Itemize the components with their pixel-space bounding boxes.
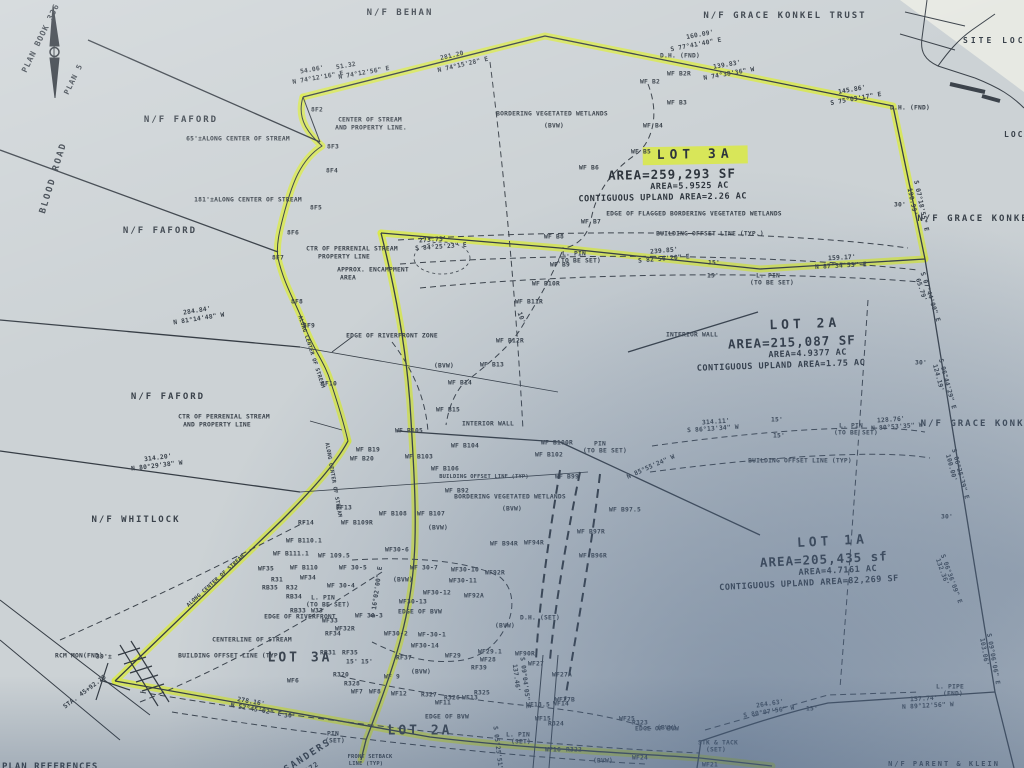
wetland-flag-label: RB34 xyxy=(286,594,302,601)
map-note: BORDERING VEGETATED WETLANDS xyxy=(454,494,566,501)
bearing-label: N 89°12'56" W xyxy=(902,701,954,711)
wetland-flag-label: WF B108 xyxy=(379,511,407,518)
dimension-label: 15' xyxy=(771,417,783,424)
wetland-flag-label: WF12 xyxy=(391,691,407,698)
wetland-flag-label: RF13 xyxy=(336,505,352,512)
wetland-flag-label: WF B6 xyxy=(579,165,599,172)
dimension-label: 15' xyxy=(773,433,785,440)
wetland-flag-label: R325 xyxy=(474,690,490,697)
map-note: BUILDING OFFSET LINE (TYP) xyxy=(748,458,852,465)
wetland-flag-label: WF-30-1 xyxy=(418,632,446,639)
wetland-flag-label: WF B9 xyxy=(550,262,570,269)
wetland-flag-label: WF11 xyxy=(435,700,451,707)
map-note: EDGE OF RIVERFRONT ZONE xyxy=(346,333,438,340)
dimension-label: 30' xyxy=(894,202,906,209)
wetland-flag-label: R32 xyxy=(286,585,298,592)
wetland-flag-label: R322 xyxy=(566,747,582,754)
owner-label: N/F FAFORD xyxy=(123,226,197,236)
wetland-flag-label: R323 xyxy=(632,720,648,727)
wetland-flag-label: WF B94R xyxy=(490,541,518,548)
wetland-flag-label: WF B104 xyxy=(451,443,479,450)
monument-label: STK & TACK xyxy=(698,740,738,747)
wetland-flag-label: WF B15 xyxy=(436,407,460,414)
wetland-flag-label: WF B4 xyxy=(643,123,663,130)
wetland-flag-label: WF B102 xyxy=(535,452,563,459)
wetland-flag-label: 8F2 xyxy=(311,107,323,114)
map-note: BORDERING VEGETATED WETLANDS xyxy=(496,111,608,118)
wetland-flag-label: WF B3 xyxy=(667,100,687,107)
wetland-flag-label: WF 30-4 xyxy=(327,583,355,590)
wetland-flag-label: WF94R xyxy=(524,540,544,547)
dimension-label: 15' xyxy=(806,706,818,713)
wetland-flag-label: RB33 xyxy=(290,608,306,615)
wetland-flag-label: WF B11R xyxy=(515,299,543,306)
wetland-flag-label: RB35 xyxy=(262,585,278,592)
map-note: STA. 45+92.15 xyxy=(62,674,108,711)
map-note: BUILDING OFFSET LINE (TYP) xyxy=(439,474,529,480)
wetland-flag-label: W33 xyxy=(311,608,323,615)
map-note: (BVW) xyxy=(495,623,515,630)
bearing-label: S 82°56'20" E xyxy=(638,253,690,264)
wetland-flag-label: WF B10R xyxy=(532,281,560,288)
wetland-flag-label: WF 9 xyxy=(384,674,400,681)
map-note: EDGE OF BVW xyxy=(635,726,679,733)
wetland-flag-label: WF B92 xyxy=(445,488,469,495)
owner-label: N/F BEHAN xyxy=(367,8,434,18)
bearing-label: N 87°34'53" E xyxy=(815,261,867,271)
wetland-flag-label: WF14 xyxy=(553,701,569,708)
wetland-flag-label: R31 xyxy=(271,577,283,584)
monument-label: (FND) xyxy=(943,691,963,698)
survey-plan-photo: LOT 3A AREA=259,293 SF AREA=5.9525 AC CO… xyxy=(0,0,1024,768)
monument-label: (TO BE SET) xyxy=(750,280,794,287)
map-note: APPROX. ENCAMPMENT xyxy=(337,267,409,274)
wetland-flag-label: 8F7 xyxy=(272,255,284,262)
monument-label: L. PIN xyxy=(756,273,780,280)
wetland-flag-label: WF30-14 xyxy=(411,643,439,650)
map-note: (BVW) xyxy=(393,577,413,584)
wetland-flag-label: 8F8 xyxy=(291,299,303,306)
map-note: BUILDING OFFSET LINE (TYP) xyxy=(178,653,282,660)
wetland-flag-label: WF B100R xyxy=(541,440,573,447)
wetland-flag-label: R327 xyxy=(421,692,437,699)
map-note: ALONG CENTER OF STREAM xyxy=(186,553,246,608)
wetland-flag-label: WF29 xyxy=(445,653,461,660)
owner-label: N/F PARENT & KLEIN xyxy=(888,760,1000,768)
map-note: CTR OF PERRENIAL STREAM xyxy=(178,414,270,421)
map-note: CENTER OF STREAM xyxy=(338,117,402,124)
monument-label: (SET) xyxy=(511,739,531,746)
owner-label: N/F WHITLOCK xyxy=(91,515,180,525)
wetland-flag-label: 8F3 xyxy=(327,144,339,151)
monument-label: RCM MON(FND) xyxy=(55,653,103,660)
wetland-flag-label: WF34 xyxy=(300,575,316,582)
wetland-flag-label: RF37 xyxy=(396,655,412,662)
monument-label: (SET) xyxy=(325,738,345,745)
wetland-flag-label: WF6 xyxy=(287,678,299,685)
wetland-flag-label: WF B105 xyxy=(395,428,423,435)
monument-label: PIN xyxy=(327,731,339,738)
map-note: 65'±ALONG CENTER OF STREAM xyxy=(186,136,290,143)
wetland-flag-label: 8F4 xyxy=(326,168,338,175)
wetland-flag-label: WF B97.5 xyxy=(609,507,641,514)
wetland-flag-label: WF B13 xyxy=(480,362,504,369)
map-note: PROPERTY LINE xyxy=(318,254,370,261)
wetland-flag-label: WF B107 xyxy=(417,511,445,518)
wetland-flag-label: WF B12R xyxy=(496,338,524,345)
map-note: AND PROPERTY LINE. xyxy=(335,125,407,132)
map-note: (BVW) xyxy=(544,123,564,130)
dimension-label: 30' xyxy=(915,360,927,367)
dimension-label: 30' xyxy=(284,713,296,720)
monument-label: (SET) xyxy=(706,747,726,754)
wetland-flag-label: WF30-13 xyxy=(399,599,427,606)
wetland-flag-label: WF B97R xyxy=(577,529,605,536)
wetland-flag-label: WF90R xyxy=(515,651,535,658)
wetland-flag-label: R320 xyxy=(333,672,349,679)
wetland-flag-label: WF30-11 xyxy=(449,578,477,585)
owner-label: N/F GRACE KONKEL TRUST xyxy=(917,214,1024,224)
wetland-flag-label: WF B110 xyxy=(290,565,318,572)
map-note: FRONT SETBACK xyxy=(348,754,393,760)
map-note: AND PROPERTY LINE xyxy=(183,422,251,429)
bearing-label: N 85°55'24" W xyxy=(626,453,676,481)
monument-label: PIN xyxy=(594,441,606,448)
wetland-flag-label: WF B2R xyxy=(667,71,691,78)
map-note: EDGE OF FLAGGED BORDERING VEGETATED WETL… xyxy=(606,211,782,218)
wetland-flag-label: WF27A xyxy=(552,672,572,679)
wetland-flag-label: R328 xyxy=(344,681,360,688)
map-note: INTERIOR WALL xyxy=(462,421,514,428)
owner-label: N/F FAFORD xyxy=(131,392,205,402)
wetland-flag-label: WF27 xyxy=(528,661,544,668)
map-note: 181'±ALONG CENTER OF STREAM xyxy=(194,197,302,204)
wetland-flag-label: WF28 xyxy=(480,657,496,664)
map-note: (BVW) xyxy=(502,506,522,513)
map-note: EDGE OF BVW xyxy=(398,609,442,616)
wetland-flag-label: RF39 xyxy=(471,665,487,672)
monument-label: L. PIN xyxy=(839,423,863,430)
wetland-flag-label: WF B5 xyxy=(631,149,651,156)
bearing-label: S 86°13'34" W xyxy=(687,424,739,435)
wetland-flag-label: WF 30-7 xyxy=(410,565,438,572)
dimension-label: 15' xyxy=(708,260,720,267)
wetland-flag-label: WF16 xyxy=(545,747,561,754)
wetland-flag-label: WF30-2 xyxy=(384,631,408,638)
wetland-flag-label: WF B14 xyxy=(448,380,472,387)
map-note: (BVW) xyxy=(434,363,454,370)
wetland-flag-label: WF B20 xyxy=(350,456,374,463)
wetland-flag-label: WF92A xyxy=(464,593,484,600)
monument-label: (TO BE SET) xyxy=(583,448,627,455)
wetland-flag-label: WF B8 xyxy=(544,234,564,241)
monument-label: L. PIN xyxy=(311,595,335,602)
wetland-flag-label: WF24 xyxy=(632,755,648,762)
wetland-flag-label: WF B110.1 xyxy=(286,538,322,545)
owner-label: N/F FAFORD xyxy=(144,115,218,125)
wetland-flag-label: WF92R xyxy=(485,570,505,577)
wetland-flag-label: WF B103 xyxy=(405,454,433,461)
monument-label: D.H. (FND) xyxy=(660,53,700,60)
wetland-flag-label: WF B19 xyxy=(356,447,380,454)
map-note: CENTERLINE OF STREAM xyxy=(212,637,292,644)
map-note: (BVW) xyxy=(411,669,431,676)
monument-label: (TO BE SET) xyxy=(834,430,878,437)
map-note: AREA xyxy=(340,275,356,282)
map-note: EDGE OF BVW xyxy=(425,714,469,721)
bearing-label: 51.32 xyxy=(336,61,357,71)
wetland-flag-label: WF8 xyxy=(369,689,381,696)
monument-label: D.H. (FND) xyxy=(890,105,930,112)
wetland-flag-label: WF B7 xyxy=(581,219,601,226)
bearing-label: S 16°02'00" E xyxy=(370,566,384,618)
dimension-label: 30' xyxy=(941,514,953,521)
wetland-flag-label: RF35 xyxy=(342,650,358,657)
wetland-flag-label: WF 30-5 xyxy=(339,565,367,572)
map-note: CTR OF PERRENIAL STREAM xyxy=(306,246,398,253)
map-note: (BVW) xyxy=(428,525,448,532)
wetland-flag-label: WF21 xyxy=(702,762,718,768)
wetland-flag-label: WF B109R xyxy=(341,520,373,527)
wetland-flag-label: WF B111.1 xyxy=(273,551,309,558)
wetland-flag-label: WF30-12 xyxy=(423,590,451,597)
monument-label: L. PIN xyxy=(562,251,586,258)
map-note: INTERIOR WALL xyxy=(666,332,718,339)
bearing-label: 281.20 xyxy=(440,50,465,62)
wetland-flag-label: 8F5 xyxy=(310,205,322,212)
monument-label: L. PIPE xyxy=(936,684,964,691)
wetland-flag-label: WF33 xyxy=(322,618,338,625)
wetland-flag-label: WF B96R xyxy=(579,553,607,560)
wetland-flag-label: 8F9 xyxy=(303,323,315,330)
dimension-label: 10' xyxy=(516,311,527,325)
dimension-label: 15' xyxy=(346,659,358,666)
wetland-flag-label: WF B106 xyxy=(431,466,459,473)
wetland-flag-label: RF14 xyxy=(298,520,314,527)
wetland-flag-label: WF 30-3 xyxy=(355,613,383,620)
lot-label: LOT 2A xyxy=(388,724,453,739)
bearing-label: N 74°38'36" W xyxy=(703,66,755,82)
wetland-flag-label: WF13.5 xyxy=(526,702,550,709)
dimension-label: 15' xyxy=(361,659,373,666)
wetland-flag-label: WF 109.5 xyxy=(318,553,350,560)
bearing-label: S 05°25'51" E xyxy=(491,726,504,768)
dimension-label: 15' xyxy=(707,273,719,280)
wetland-flag-label: WF7 xyxy=(351,689,363,696)
map-note: (BVW) xyxy=(593,758,613,765)
monument-label: L. PIN xyxy=(506,732,530,739)
annotation-layer: N/F BEHANN/F GRACE KONKEL TRUSTN/F GRACE… xyxy=(0,0,1024,768)
map-note: LINE (TYP) xyxy=(349,761,383,767)
map-note: BUILDING OFFSET LINE (TYP.) xyxy=(656,231,764,238)
wetland-flag-label: WF B2 xyxy=(640,79,660,86)
wetland-flag-label: WF30-6 xyxy=(385,547,409,554)
owner-label: N/F GRACE KONKEL TRUST xyxy=(703,11,866,21)
wetland-flag-label: WF B99 xyxy=(555,474,579,481)
monument-label: D.H. (SET) xyxy=(520,615,560,622)
wetland-flag-label: WF30-10 xyxy=(451,567,479,574)
wetland-flag-label: WF35 xyxy=(258,566,274,573)
wetland-flag-label: WF29.1 xyxy=(478,649,502,656)
wetland-flag-label: 8F6 xyxy=(287,230,299,237)
wetland-flag-label: RF34 xyxy=(325,631,341,638)
wetland-flag-label: 8F10 xyxy=(321,381,337,388)
wetland-flag-label: RB31 xyxy=(320,650,336,657)
wetland-flag-label: R324 xyxy=(548,721,564,728)
owner-label: N/F GRACE KONKEL xyxy=(921,419,1024,429)
